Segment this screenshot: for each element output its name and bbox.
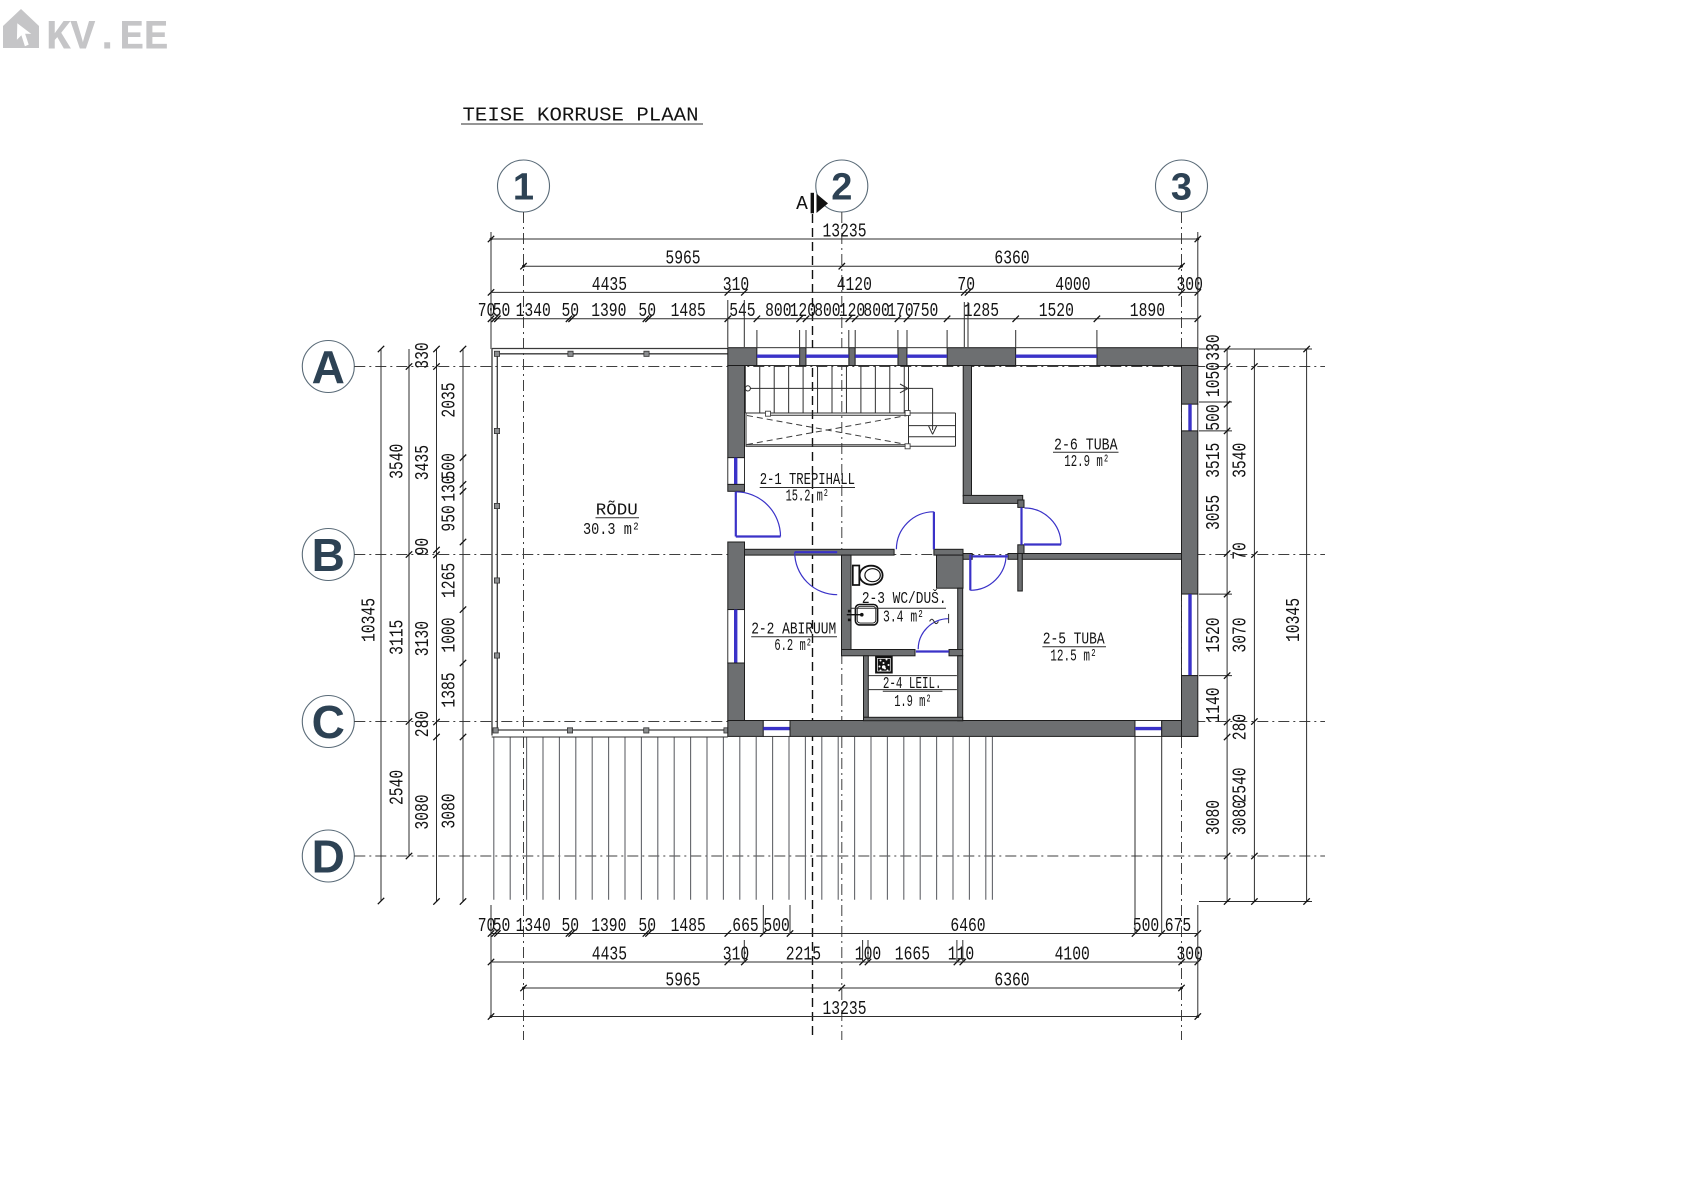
svg-text:2540: 2540 xyxy=(387,770,409,805)
svg-text:10345: 10345 xyxy=(1283,598,1305,642)
svg-text:1340: 1340 xyxy=(516,300,551,322)
svg-text:2540: 2540 xyxy=(1230,767,1252,802)
svg-text:1285: 1285 xyxy=(964,300,999,322)
svg-text:330: 330 xyxy=(412,342,434,368)
svg-text:170: 170 xyxy=(887,300,913,322)
svg-text:750: 750 xyxy=(912,300,938,322)
svg-text:2035: 2035 xyxy=(439,382,461,417)
svg-text:675: 675 xyxy=(1165,915,1191,937)
svg-text:3515: 3515 xyxy=(1203,443,1225,478)
svg-text:5965: 5965 xyxy=(665,248,700,270)
svg-text:280: 280 xyxy=(1230,714,1252,740)
svg-text:800: 800 xyxy=(863,300,889,322)
svg-text:3.4 m²: 3.4 m² xyxy=(883,609,924,628)
svg-text:3070: 3070 xyxy=(1230,617,1252,652)
svg-text:3080: 3080 xyxy=(439,793,461,828)
svg-text:1050: 1050 xyxy=(1203,362,1225,397)
svg-text:1520: 1520 xyxy=(1039,300,1074,322)
svg-text:6360: 6360 xyxy=(994,248,1029,270)
svg-text:1140: 1140 xyxy=(1203,687,1225,722)
svg-text:90: 90 xyxy=(412,538,434,556)
svg-text:A: A xyxy=(312,341,345,393)
svg-text:2: 2 xyxy=(831,167,852,209)
svg-text:300: 300 xyxy=(1177,943,1203,965)
svg-text:6360: 6360 xyxy=(994,969,1029,991)
svg-text:3130: 3130 xyxy=(412,621,434,656)
svg-text:KV.EE: KV.EE xyxy=(46,15,168,62)
svg-text:1.9 m²: 1.9 m² xyxy=(894,693,931,712)
svg-text:3080: 3080 xyxy=(412,794,434,829)
svg-text:4435: 4435 xyxy=(592,274,627,296)
svg-text:1890: 1890 xyxy=(1130,300,1165,322)
svg-text:3540: 3540 xyxy=(387,444,409,479)
svg-text:10345: 10345 xyxy=(359,598,381,642)
svg-text:50: 50 xyxy=(562,915,580,937)
svg-text:C: C xyxy=(312,696,345,748)
svg-text:3115: 3115 xyxy=(387,620,409,655)
svg-text:6460: 6460 xyxy=(950,915,985,937)
svg-text:500: 500 xyxy=(1133,915,1159,937)
svg-text:A: A xyxy=(796,193,808,215)
svg-text:500: 500 xyxy=(763,915,789,937)
svg-text:50: 50 xyxy=(638,915,656,937)
svg-text:500: 500 xyxy=(1203,404,1225,430)
svg-text:50: 50 xyxy=(638,300,656,322)
svg-text:3: 3 xyxy=(1171,167,1192,209)
svg-text:310: 310 xyxy=(723,274,749,296)
svg-text:110: 110 xyxy=(948,943,974,965)
svg-text:3540: 3540 xyxy=(1230,443,1252,478)
svg-text:1520: 1520 xyxy=(1203,617,1225,652)
svg-text:1665: 1665 xyxy=(895,943,930,965)
svg-text:TEISE KORRUSE PLAAN: TEISE KORRUSE PLAAN xyxy=(463,105,699,127)
svg-text:1000: 1000 xyxy=(439,617,461,652)
svg-text:3055: 3055 xyxy=(1203,495,1225,530)
svg-text:13235: 13235 xyxy=(823,998,867,1020)
svg-text:1485: 1485 xyxy=(671,300,706,322)
svg-text:2215: 2215 xyxy=(786,943,821,965)
svg-text:1390: 1390 xyxy=(591,300,626,322)
svg-text:1265: 1265 xyxy=(439,563,461,598)
svg-text:3435: 3435 xyxy=(412,445,434,480)
svg-text:D: D xyxy=(312,831,345,883)
svg-text:4100: 4100 xyxy=(1055,943,1090,965)
svg-text:50: 50 xyxy=(493,300,511,322)
svg-text:800: 800 xyxy=(765,300,791,322)
svg-text:70: 70 xyxy=(957,274,975,296)
svg-text:70: 70 xyxy=(1230,542,1252,560)
svg-text:12.9 m²: 12.9 m² xyxy=(1064,453,1109,472)
svg-text:4120: 4120 xyxy=(837,274,872,296)
svg-text:6.2 m²: 6.2 m² xyxy=(774,637,812,656)
svg-text:1485: 1485 xyxy=(671,915,706,937)
svg-text:5965: 5965 xyxy=(665,969,700,991)
svg-text:50: 50 xyxy=(562,300,580,322)
svg-text:1340: 1340 xyxy=(516,915,551,937)
svg-text:4000: 4000 xyxy=(1055,274,1090,296)
svg-text:130: 130 xyxy=(439,475,461,501)
svg-text:15.2 m²: 15.2 m² xyxy=(786,488,829,507)
svg-text:120: 120 xyxy=(839,300,865,322)
svg-text:300: 300 xyxy=(1177,274,1203,296)
svg-text:120: 120 xyxy=(790,300,816,322)
svg-text:800: 800 xyxy=(814,300,840,322)
svg-text:330: 330 xyxy=(1203,334,1225,360)
svg-text:545: 545 xyxy=(729,300,755,322)
svg-text:665: 665 xyxy=(732,915,758,937)
svg-text:1: 1 xyxy=(513,167,534,209)
svg-text:3080: 3080 xyxy=(1230,800,1252,835)
svg-text:4435: 4435 xyxy=(592,943,627,965)
svg-text:280: 280 xyxy=(412,711,434,737)
svg-text:2-3 WC/DUŠ.: 2-3 WC/DUŠ. xyxy=(862,589,947,609)
svg-text:1385: 1385 xyxy=(439,672,461,707)
svg-text:12.5 m²: 12.5 m² xyxy=(1050,648,1096,667)
svg-text:B: B xyxy=(312,529,345,581)
svg-text:13235: 13235 xyxy=(823,221,867,243)
svg-text:50: 50 xyxy=(493,915,511,937)
svg-text:1390: 1390 xyxy=(591,915,626,937)
svg-text:30.3 m²: 30.3 m² xyxy=(583,521,640,540)
svg-text:3080: 3080 xyxy=(1203,800,1225,835)
svg-text:310: 310 xyxy=(723,943,749,965)
svg-text:950: 950 xyxy=(439,505,461,531)
